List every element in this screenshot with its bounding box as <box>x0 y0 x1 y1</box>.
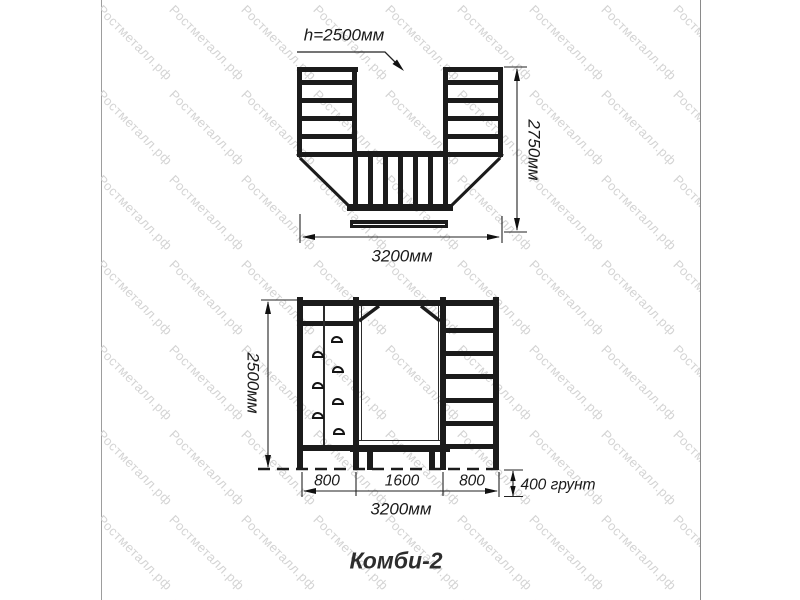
segment-dim-label: 1600 <box>385 473 419 489</box>
elevation-width-dim-label: 3200мм <box>370 501 431 518</box>
plan-width-dim-label: 3200мм <box>371 248 432 265</box>
drawing-sheet: Ростметалл.рфРостметалл.рфРостметалл.рфР… <box>0 0 800 600</box>
plan-depth-dim-label: 2750мм <box>526 119 543 180</box>
drawing-title: Комби-2 <box>349 550 442 573</box>
segment-dim-label: 800 <box>459 473 485 489</box>
ground-depth-label: 400 грунт <box>520 477 595 493</box>
elevation-height-dim-label: 2500мм <box>245 352 262 413</box>
plan-height-note: h=2500мм <box>304 27 385 44</box>
segment-dim-label: 800 <box>314 473 340 489</box>
